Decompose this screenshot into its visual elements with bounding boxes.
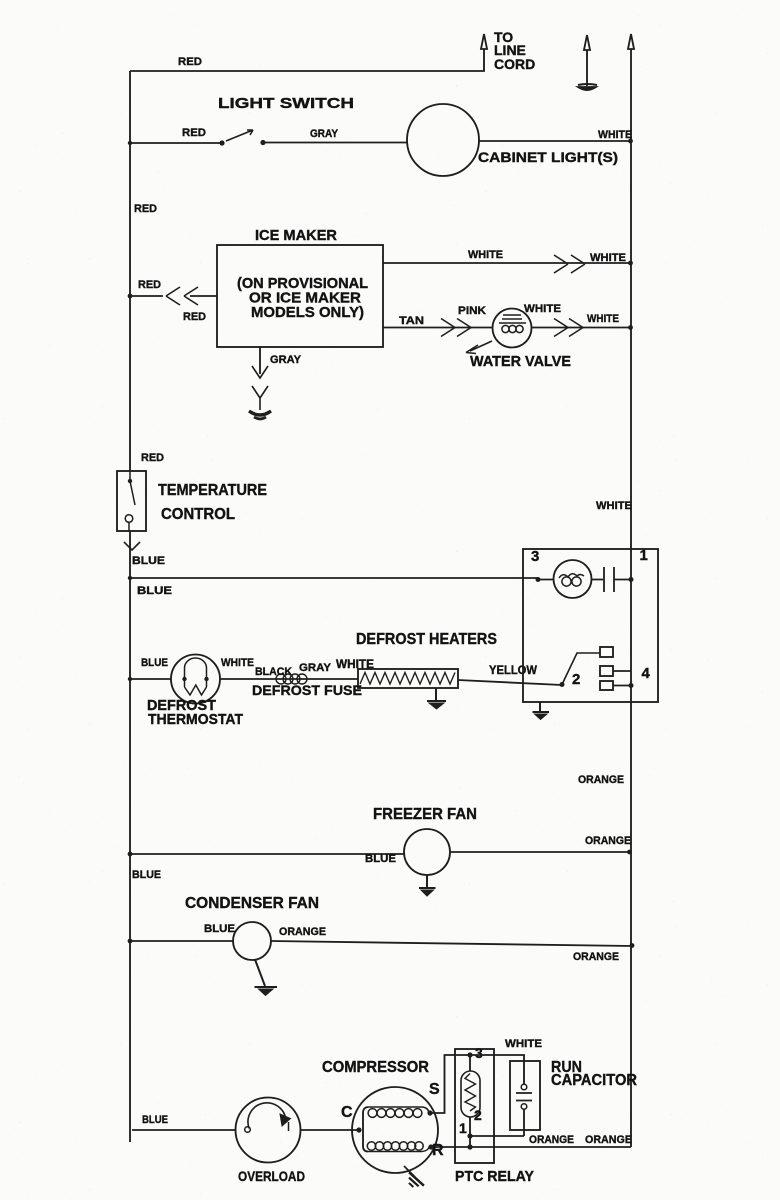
svg-text:1: 1: [640, 547, 648, 564]
svg-text:MODELS ONLY): MODELS ONLY): [251, 305, 364, 321]
svg-text:CONDENSER FAN: CONDENSER FAN: [185, 895, 319, 912]
svg-text:BLUE: BLUE: [141, 657, 168, 669]
svg-text:WHITE: WHITE: [524, 303, 561, 315]
svg-text:RED: RED: [182, 127, 206, 139]
svg-text:ORANGE: ORANGE: [529, 1134, 574, 1146]
svg-text:CORD: CORD: [494, 56, 535, 72]
svg-text:CABINET LIGHT(S): CABINET LIGHT(S): [478, 149, 618, 165]
svg-text:BLACK: BLACK: [255, 666, 292, 678]
svg-text:OVERLOAD: OVERLOAD: [238, 1168, 305, 1184]
svg-text:R: R: [432, 1142, 444, 1159]
svg-text:RED: RED: [183, 311, 206, 323]
svg-text:WHITE: WHITE: [505, 1038, 542, 1050]
svg-text:FREEZER FAN: FREEZER FAN: [373, 806, 477, 823]
svg-text:WHITE: WHITE: [468, 249, 503, 261]
svg-text:C: C: [341, 1104, 353, 1121]
svg-text:2: 2: [572, 671, 580, 688]
svg-text:WHITE: WHITE: [587, 313, 619, 325]
svg-text:RED: RED: [138, 279, 161, 291]
svg-text:ORANGE: ORANGE: [279, 926, 326, 938]
svg-text:3: 3: [531, 548, 539, 565]
svg-text:ORANGE: ORANGE: [585, 835, 631, 847]
svg-text:RED: RED: [134, 203, 157, 215]
svg-text:4: 4: [642, 665, 651, 682]
svg-text:YELLOW: YELLOW: [489, 665, 537, 677]
svg-text:S: S: [429, 1081, 440, 1098]
svg-text:WHITE: WHITE: [590, 252, 626, 264]
svg-text:3: 3: [475, 1045, 483, 1061]
svg-text:2: 2: [474, 1107, 482, 1123]
svg-text:BLUE: BLUE: [137, 585, 172, 597]
svg-text:PTC RELAY: PTC RELAY: [455, 1168, 534, 1185]
svg-text:CONTROL: CONTROL: [161, 506, 235, 523]
svg-text:TEMPERATURE: TEMPERATURE: [158, 482, 267, 499]
svg-text:ICE MAKER: ICE MAKER: [255, 228, 338, 244]
svg-text:WHITE: WHITE: [221, 657, 254, 669]
svg-text:BLUE: BLUE: [142, 1114, 168, 1126]
svg-text:THERMOSTAT: THERMOSTAT: [148, 711, 243, 728]
svg-text:GRAY: GRAY: [270, 354, 302, 366]
svg-text:BLUE: BLUE: [132, 555, 165, 567]
svg-text:RED: RED: [141, 452, 164, 464]
svg-text:ORANGE: ORANGE: [573, 951, 619, 963]
svg-text:COMPRESSOR: COMPRESSOR: [322, 1059, 429, 1076]
svg-text:BLUE: BLUE: [132, 869, 161, 881]
svg-text:WHITE: WHITE: [598, 129, 632, 141]
svg-text:RED: RED: [178, 56, 202, 68]
svg-text:WHITE: WHITE: [596, 500, 632, 512]
svg-text:BLUE: BLUE: [365, 853, 396, 865]
svg-text:GRAY: GRAY: [299, 662, 332, 674]
svg-text:WHITE: WHITE: [336, 659, 374, 671]
svg-text:1: 1: [459, 1120, 467, 1136]
svg-text:DEFROST HEATERS: DEFROST HEATERS: [356, 631, 497, 648]
svg-text:BLUE: BLUE: [204, 923, 235, 935]
svg-text:PINK: PINK: [458, 305, 486, 317]
svg-text:GRAY: GRAY: [310, 128, 339, 140]
svg-text:DEFROST FUSE: DEFROST FUSE: [252, 682, 362, 698]
svg-text:WATER VALVE: WATER VALVE: [470, 353, 571, 370]
svg-text:ORANGE: ORANGE: [585, 1134, 632, 1146]
svg-text:CAPACITOR: CAPACITOR: [551, 1072, 637, 1089]
svg-text:LIGHT SWITCH: LIGHT SWITCH: [218, 95, 354, 112]
svg-text:TAN: TAN: [399, 315, 424, 327]
svg-text:ORANGE: ORANGE: [578, 774, 624, 786]
